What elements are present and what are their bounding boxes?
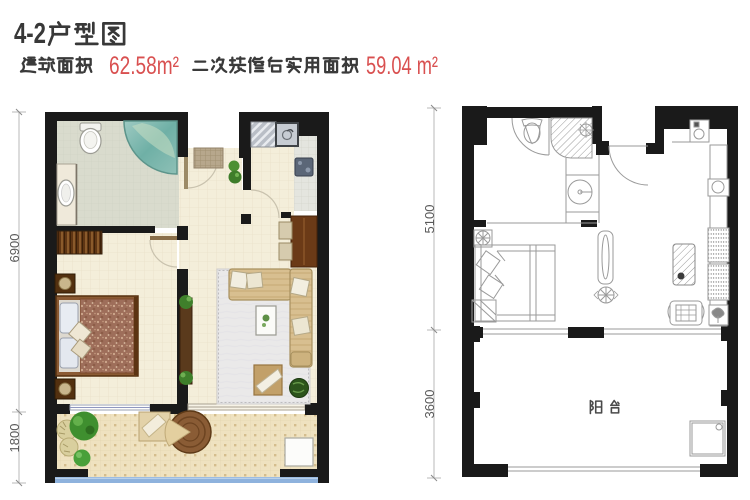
svg-text:1800: 1800	[7, 424, 22, 453]
svg-text:62.58m²: 62.58m²	[109, 52, 179, 80]
svg-text:4-2: 4-2	[14, 18, 46, 50]
svg-text:3600: 3600	[422, 390, 437, 419]
svg-text:6900: 6900	[7, 234, 22, 263]
svg-text:5100: 5100	[422, 205, 437, 234]
svg-text:59.04 m²: 59.04 m²	[366, 52, 438, 80]
